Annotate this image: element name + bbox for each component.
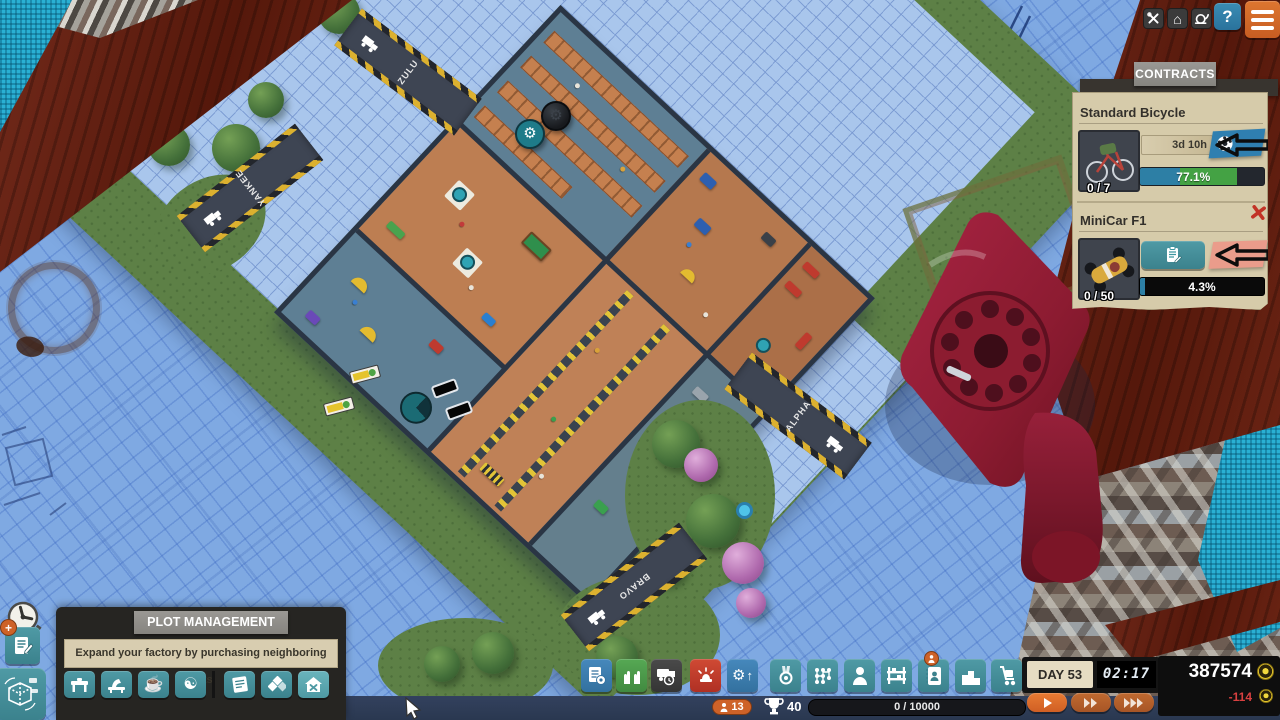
question-mark-icon: ? bbox=[1222, 7, 1232, 27]
status-bubble[interactable]: ⚙ bbox=[541, 101, 571, 131]
time-remaining: 3d 10h bbox=[1141, 135, 1213, 155]
rankings-button[interactable] bbox=[955, 659, 986, 692]
pencil-sketch-left bbox=[0, 415, 75, 530]
person-icon bbox=[852, 666, 868, 686]
money-delta: -114 bbox=[1229, 690, 1252, 704]
machine bbox=[351, 274, 371, 294]
contracts-title: CONTRACTS bbox=[1134, 62, 1216, 86]
achievements-button[interactable] bbox=[770, 659, 801, 692]
speed-fast-button[interactable] bbox=[1071, 693, 1111, 712]
supplies-button[interactable] bbox=[991, 659, 1022, 692]
gear-icon: ⚙ bbox=[549, 107, 562, 124]
help-button[interactable]: ? bbox=[1214, 3, 1241, 30]
dock-label: YANKEE bbox=[233, 168, 267, 208]
research-progress-bar[interactable]: 0 / 10000 bbox=[808, 699, 1026, 716]
money-panel: 387574 -114 bbox=[1158, 656, 1280, 716]
fountain bbox=[736, 502, 753, 519]
wrench-screwdriver-icon bbox=[1147, 12, 1160, 25]
cherry-tree bbox=[736, 588, 766, 618]
construction-gear-bubble[interactable]: ⚙ bbox=[515, 119, 545, 149]
tree bbox=[424, 646, 460, 682]
gear-icon: ⚙ bbox=[732, 668, 745, 683]
play-icon bbox=[1042, 698, 1052, 708]
truck-icon bbox=[201, 205, 225, 228]
breakroom-category-button[interactable]: ☕ bbox=[138, 671, 169, 698]
progress-label: 77.1% bbox=[1140, 168, 1247, 186]
tooltip-body: Expand your factory by purchasing neighb… bbox=[64, 639, 338, 668]
contract-progress-bar: 4.3% bbox=[1139, 277, 1265, 296]
shelf-rack-icon bbox=[886, 666, 907, 685]
machine bbox=[360, 323, 380, 343]
machine bbox=[428, 338, 444, 354]
siren-icon bbox=[696, 666, 716, 685]
contract-progress-bar: 77.1% bbox=[1139, 167, 1265, 186]
tree bbox=[472, 632, 514, 674]
medal-icon bbox=[778, 666, 794, 686]
game-viewport: 3,5x1 bbox=[0, 0, 1280, 720]
tree bbox=[248, 82, 284, 118]
fast-forward-icon bbox=[1084, 698, 1099, 708]
cherry-tree bbox=[722, 542, 764, 584]
tooltip-title: PLOT MANAGEMENT bbox=[134, 611, 288, 634]
truck-icon bbox=[823, 433, 847, 456]
new-order-badge: + bbox=[0, 619, 17, 636]
hamburger-icon bbox=[1251, 10, 1274, 14]
cancel-contract-icon[interactable] bbox=[1251, 205, 1266, 220]
saw-machine-icon bbox=[107, 677, 126, 693]
cube-3d-icon bbox=[1, 675, 39, 713]
speed-play-button[interactable] bbox=[1027, 693, 1067, 712]
snail-icon bbox=[1194, 13, 1209, 25]
worker-icon bbox=[720, 703, 728, 712]
catalog-button[interactable] bbox=[224, 671, 255, 698]
contracts-panel: Standard Bicycle 0 / 7 3d 10h bbox=[1072, 92, 1268, 310]
contact-book-icon bbox=[925, 666, 943, 686]
workbench-icon bbox=[70, 677, 89, 693]
alerts-button[interactable] bbox=[690, 659, 721, 692]
plus-icon: + bbox=[5, 622, 12, 634]
worker bbox=[574, 82, 581, 89]
cherry-tree bbox=[684, 448, 718, 482]
handtruck-icon bbox=[997, 666, 1017, 686]
snail-button[interactable] bbox=[1191, 8, 1212, 29]
machines-category-button[interactable] bbox=[101, 671, 132, 698]
home-button[interactable]: ⌂ bbox=[1167, 8, 1188, 29]
game-clock: 02:17 bbox=[1097, 661, 1156, 688]
document-gear-icon bbox=[587, 666, 607, 686]
worker bbox=[619, 166, 626, 173]
arrow-up-icon: ↑ bbox=[746, 669, 753, 682]
contract-count: 0 / 50 bbox=[1084, 289, 1114, 303]
logistics-button[interactable] bbox=[651, 659, 682, 692]
coin-icon bbox=[1257, 663, 1274, 680]
staff-button[interactable] bbox=[844, 659, 875, 692]
dock-label: ALPHA bbox=[783, 399, 813, 434]
gear-icon: ⚙ bbox=[523, 125, 536, 142]
progress-label: 4.3% bbox=[1140, 278, 1264, 296]
podium-icon bbox=[961, 667, 981, 685]
contract-count: 0 / 7 bbox=[1087, 181, 1110, 195]
tree bbox=[686, 494, 740, 548]
house-tools-icon bbox=[304, 676, 323, 694]
truck-clock-icon bbox=[656, 666, 678, 686]
floor-tiles-icon bbox=[268, 676, 286, 694]
day-counter: DAY 53 bbox=[1027, 661, 1093, 688]
upgrades-button[interactable]: ⚙ ↑ bbox=[727, 659, 758, 692]
clipboard-icon bbox=[1164, 246, 1182, 264]
research-tree-button[interactable] bbox=[807, 659, 838, 692]
flooring-button[interactable] bbox=[261, 671, 292, 698]
trophy-icon bbox=[764, 697, 784, 715]
plot-management-button[interactable] bbox=[298, 671, 329, 698]
fastest-forward-icon bbox=[1124, 698, 1144, 708]
production-orders-button[interactable] bbox=[581, 659, 612, 692]
catalog-icon bbox=[231, 676, 249, 693]
dock-label: ZULU bbox=[396, 58, 421, 86]
home-icon: ⌂ bbox=[1173, 12, 1181, 26]
worker bbox=[351, 299, 358, 306]
machine bbox=[305, 309, 321, 325]
workbench-category-button[interactable] bbox=[64, 671, 95, 698]
hands-mode-button[interactable] bbox=[616, 659, 647, 692]
coin-icon bbox=[1259, 689, 1273, 703]
tools-button[interactable] bbox=[1143, 8, 1164, 29]
storage-button[interactable] bbox=[881, 659, 912, 692]
hands-icon bbox=[622, 667, 642, 685]
contract-card[interactable]: MiniCar F1 0 / 50 bbox=[1073, 203, 1269, 309]
person-icon bbox=[928, 655, 935, 663]
assign-arrow-icon[interactable] bbox=[1213, 132, 1271, 158]
view-mode-cube-button[interactable] bbox=[0, 668, 46, 720]
contract-title: Standard Bicycle bbox=[1080, 105, 1186, 120]
order-sheet-icon bbox=[13, 635, 33, 657]
skill-tree-icon bbox=[813, 666, 833, 686]
speed-fastest-button[interactable] bbox=[1114, 693, 1154, 712]
assign-arrow-icon[interactable] bbox=[1213, 242, 1271, 268]
workers-count-badge[interactable]: 13 bbox=[712, 699, 752, 715]
contract-title: MiniCar F1 bbox=[1080, 213, 1146, 228]
truck-icon bbox=[358, 32, 382, 55]
coffee-icon: ☕ bbox=[144, 677, 164, 693]
contract-details-button[interactable] bbox=[1141, 241, 1205, 269]
contract-card[interactable]: Standard Bicycle 0 / 7 3d 10h bbox=[1073, 97, 1269, 201]
menu-button[interactable] bbox=[1245, 1, 1280, 38]
money-balance: 387574 bbox=[1189, 661, 1252, 683]
decoration-category-button[interactable]: ☯ bbox=[175, 671, 206, 698]
trophy-count: 40 bbox=[787, 699, 801, 714]
truck-icon bbox=[585, 604, 609, 627]
workers-count: 13 bbox=[731, 701, 743, 713]
yin-yang-icon: ☯ bbox=[183, 677, 197, 693]
contacts-alert-badge bbox=[924, 651, 939, 666]
mouse-cursor bbox=[405, 697, 423, 720]
